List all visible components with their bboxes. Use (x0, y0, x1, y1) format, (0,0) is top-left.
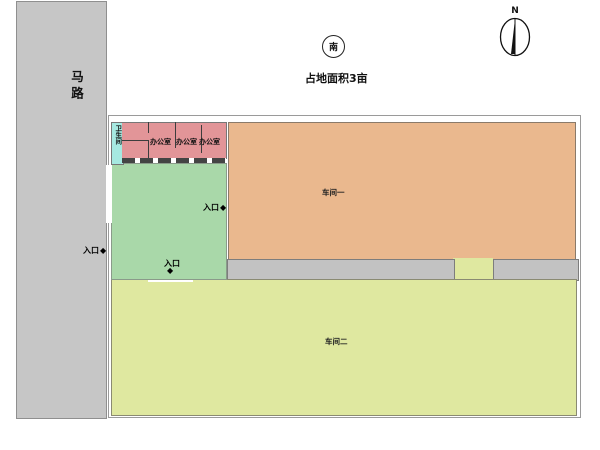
road-label: 马路 (67, 70, 86, 103)
workshop1-label: 车间一 (322, 187, 345, 198)
office-label-2: 办公室 (176, 137, 197, 147)
office-wall (148, 122, 149, 133)
south-marker: 南 (322, 35, 345, 58)
office-south-wall-windows (122, 158, 226, 163)
entrance-marker-icon: ◆ (100, 247, 106, 255)
entrance-label: 入口 (83, 245, 99, 256)
entrance-marker-icon: ◆ (167, 266, 173, 275)
office-wall (122, 140, 149, 141)
corridor-band-east (493, 259, 579, 281)
office-label-1: 办公室 (150, 137, 171, 147)
workshop2-area (111, 279, 577, 416)
north-compass-icon: N (494, 2, 536, 60)
workshop-passage (453, 258, 493, 280)
road-area: 马路 (16, 1, 107, 419)
workshop1-area (228, 122, 576, 260)
courtyard-west-opening (106, 165, 112, 223)
area-note: 占地面积3亩 (305, 70, 368, 86)
office-wall (148, 140, 149, 158)
compass-north-label: N (511, 6, 519, 16)
workshop2-label: 车间二 (325, 336, 348, 347)
entrance-courtyard-east: 入口◆ (203, 202, 226, 213)
entrance-label: 入口 (203, 202, 219, 213)
toilet-label: 卫生间 (114, 125, 121, 145)
site-plan-canvas: 马路 车间一 车间二 卫生间 办公室 办公室 办公室 入口◆ 入口◆ 入口 ◆ … (0, 0, 600, 450)
entrance-marker-icon: ◆ (220, 204, 226, 212)
office-label-3: 办公室 (199, 137, 220, 147)
south-marker-label: 南 (329, 40, 338, 53)
corridor-band-west (227, 259, 455, 281)
entrance-road: 入口◆ (83, 245, 106, 256)
